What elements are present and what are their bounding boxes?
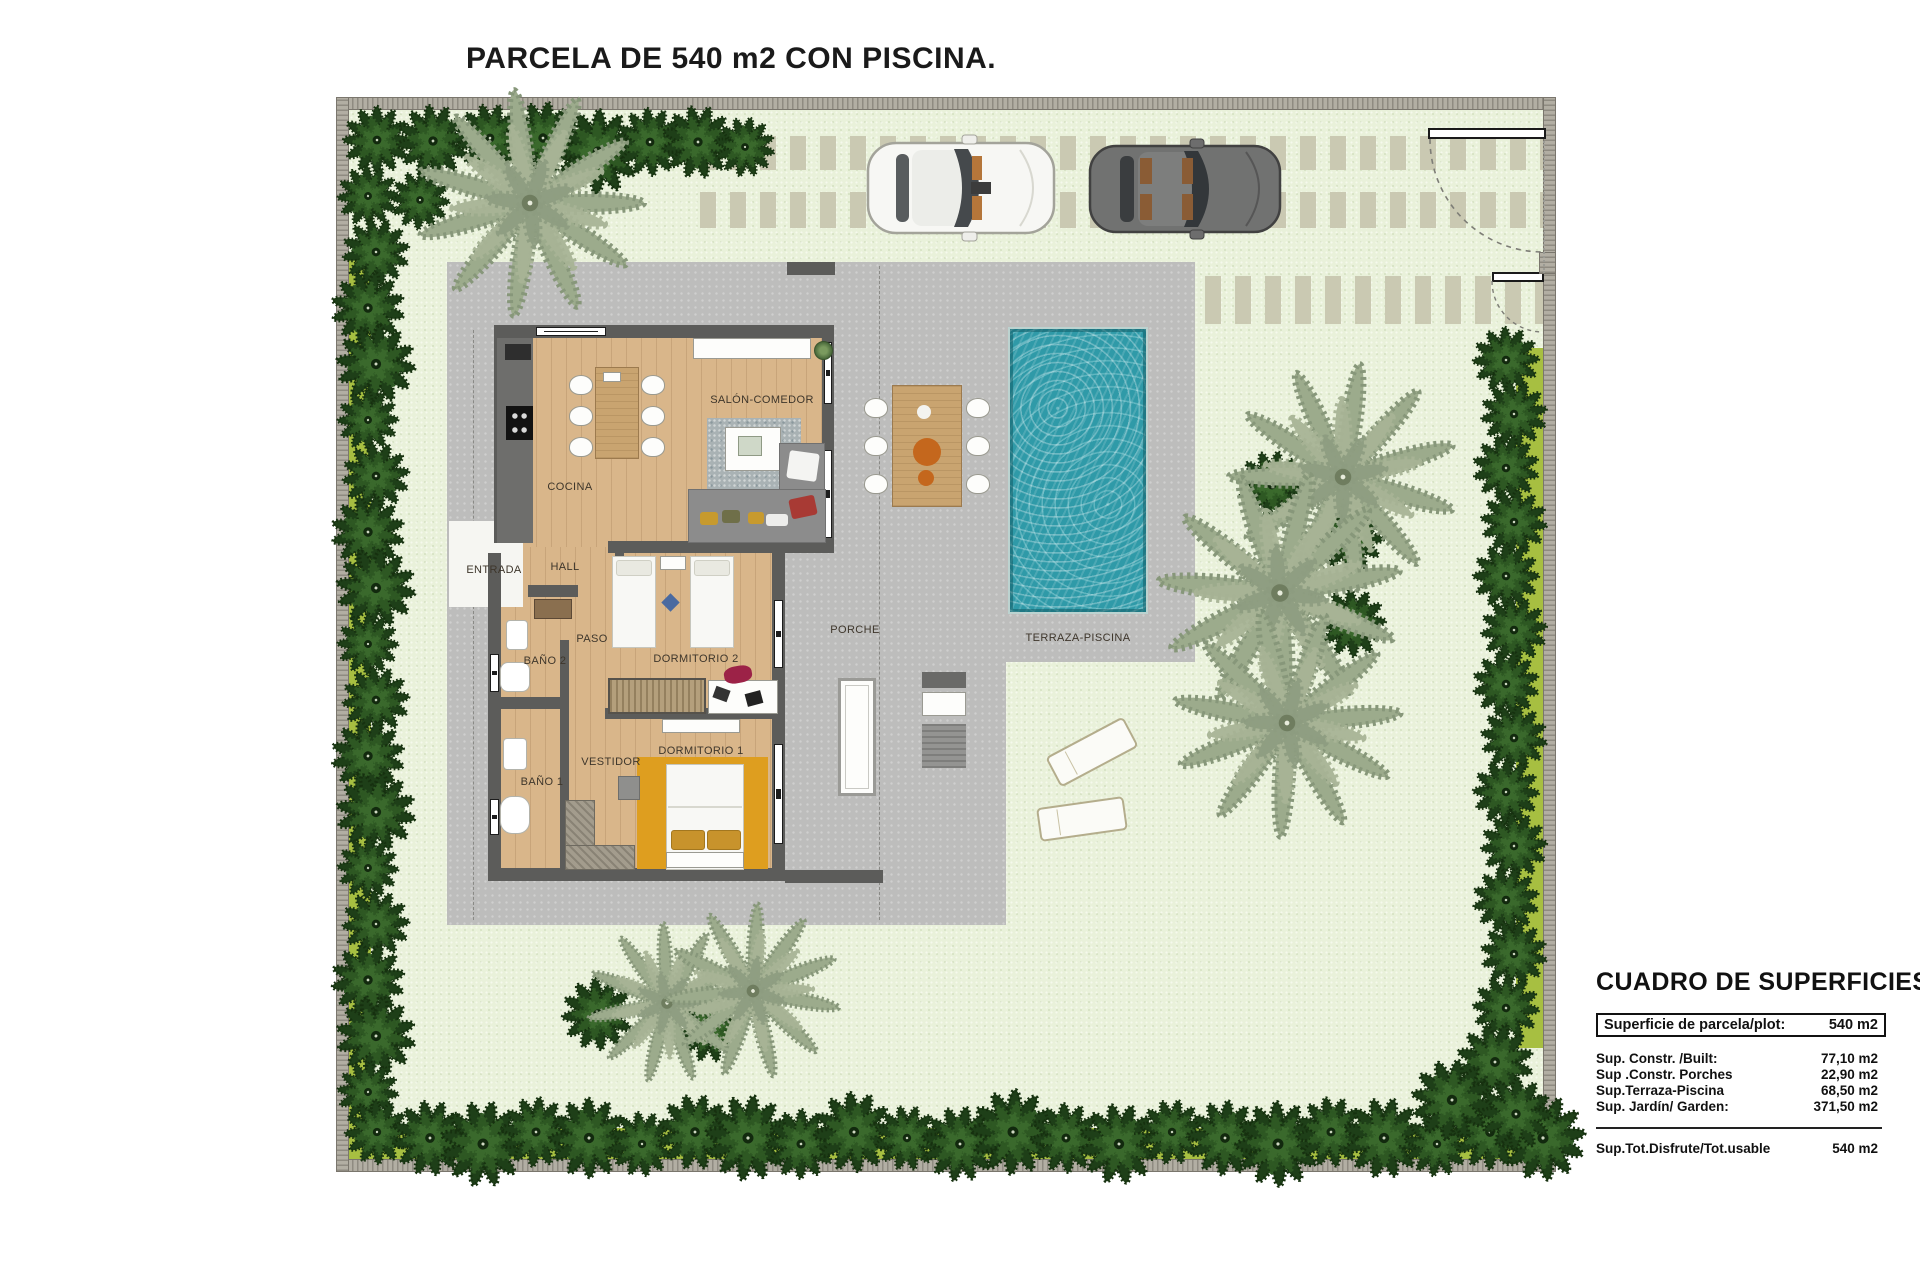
dining-chair [641, 406, 665, 426]
dining-chair [641, 437, 665, 457]
surface-row-value: 68,50 m2 [1821, 1083, 1878, 1099]
porch-dashed-line [879, 266, 880, 920]
lawn-strip-left [349, 258, 371, 1158]
headboard [666, 852, 744, 868]
bath1-sink [503, 738, 527, 770]
kitchen-sink [505, 344, 531, 360]
lawn-strip-bottom [349, 1128, 1543, 1159]
total-row-value: 540 m2 [1832, 1141, 1878, 1156]
surface-row-label: Sup.Terraza-Piscina [1596, 1083, 1724, 1099]
window-dorm2 [774, 600, 783, 668]
sofa-pillow-white [786, 450, 820, 482]
vehicle-gate-leaf [1428, 128, 1546, 139]
sofa-cushion [748, 512, 764, 524]
plot-wall-bottom [336, 1159, 1556, 1172]
room-label-entrada: ENTRADA [466, 564, 521, 576]
wall-bathroom-divider [500, 697, 564, 709]
kitchen-counter [497, 338, 533, 543]
surface-row: Sup. Jardín/ Garden: 371,50 m2 [1596, 1099, 1878, 1115]
nightstand [660, 556, 686, 570]
parking-stripes-row2 [700, 192, 1543, 228]
outdoor-chair [966, 474, 990, 494]
outdoor-chair [864, 474, 888, 494]
wall-hall [528, 585, 578, 597]
bed-pillow [694, 560, 730, 576]
vestidor-unit [618, 776, 640, 800]
window-dorm1 [774, 744, 783, 844]
bath1-tub [500, 796, 530, 834]
surface-row-value: 77,10 m2 [1821, 1051, 1878, 1067]
surfaces-table-title: CUADRO DE SUPERFICIES [1596, 968, 1896, 997]
room-label-paso: PASO [576, 633, 607, 645]
parking-stripes-row3 [1205, 276, 1543, 324]
room-label-dormitorio-1: DORMITORIO 1 [658, 745, 743, 757]
room-label-bano-1: BAÑO 1 [521, 776, 564, 788]
sofa-throw [766, 514, 788, 526]
room-label-terraza-piscina: TERRAZA-PISCINA [1025, 632, 1130, 644]
lawn-strip-right [1516, 348, 1543, 1048]
outdoor-chair [966, 436, 990, 456]
duvet-fold [668, 806, 742, 808]
gate-pier [1539, 252, 1556, 274]
plate-large [913, 438, 941, 466]
dining-chair [641, 375, 665, 395]
room-label-dormitorio-2: DORMITORIO 2 [653, 653, 738, 665]
surface-row-label: Sup. Constr. /Built: [1596, 1051, 1718, 1067]
page-title: PARCELA DE 540 m2 CON PISCINA. [466, 42, 996, 76]
total-row-label: Sup.Tot.Disfrute/Tot.usable [1596, 1141, 1770, 1156]
floor-plan-page: PARCELA DE 540 m2 CON PISCINA. [0, 0, 1920, 1280]
dining-tray [603, 372, 621, 382]
porch-bench [922, 672, 966, 688]
vestidor-closet [565, 845, 635, 870]
plot-wall-top [336, 97, 1556, 110]
surface-row-label: Sup .Constr. Porches [1596, 1067, 1733, 1083]
table-divider [1596, 1127, 1882, 1129]
surface-row-label: Sup. Jardín/ Garden: [1596, 1099, 1729, 1115]
surface-row: Sup.Terraza-Piscina 68,50 m2 [1596, 1083, 1878, 1099]
kitchen-stove [506, 406, 533, 440]
parking-stripes-row1 [700, 136, 1543, 170]
window-bath2 [490, 654, 499, 692]
room-label-vestidor: VESTIDOR [581, 756, 640, 768]
dining-chair [569, 375, 593, 395]
gate-boundary-line [1543, 141, 1545, 273]
plate-small [918, 470, 934, 486]
room-label-hall: HALL [550, 561, 579, 573]
surfaces-table: CUADRO DE SUPERFICIES Superficie de parc… [1596, 968, 1896, 1156]
sofa-cushion [700, 512, 718, 525]
wall-stub-top [787, 262, 835, 275]
plot-area-row: Superficie de parcela/plot: 540 m2 [1596, 1013, 1886, 1037]
surface-row: Sup .Constr. Porches 22,90 m2 [1596, 1067, 1878, 1083]
swimming-pool [1008, 327, 1148, 614]
outdoor-chair [864, 436, 888, 456]
bed-pillow-orange [671, 830, 705, 850]
plot-area-value: 540 m2 [1829, 1017, 1878, 1033]
dining-chair [569, 437, 593, 457]
room-label-salon-comedor: SALÓN-COMEDOR [710, 394, 814, 406]
room-label-porche: PORCHE [830, 624, 879, 636]
total-row: Sup.Tot.Disfrute/Tot.usable 540 m2 [1596, 1141, 1878, 1156]
window-bath1 [490, 799, 499, 835]
surface-row-value: 371,50 m2 [1813, 1099, 1878, 1115]
surface-row-value: 22,90 m2 [1821, 1067, 1878, 1083]
bed-pillow-orange [707, 830, 741, 850]
surface-row: Sup. Constr. /Built: 77,10 m2 [1596, 1051, 1878, 1067]
porch-low-wall [785, 870, 883, 883]
room-label-cocina: COCINA [547, 481, 592, 493]
plot-area-label: Superficie de parcela/plot: [1604, 1017, 1785, 1033]
bed-pillow [616, 560, 652, 576]
porch-table [922, 692, 966, 716]
sofa-cushion [722, 510, 740, 523]
dining-chair [569, 406, 593, 426]
room-label-bano-2: BAÑO 2 [524, 655, 567, 667]
outdoor-chair [864, 398, 888, 418]
wardrobe [608, 678, 706, 714]
setback-dashed-line [473, 330, 474, 920]
bath2-sink [506, 620, 528, 650]
sideboard [693, 338, 811, 359]
porch-planter [838, 678, 876, 796]
plate-white [917, 405, 931, 419]
window-kitchen [536, 327, 606, 336]
outdoor-chair [966, 398, 990, 418]
plot-wall-left [336, 97, 349, 1172]
entry-closet [534, 599, 572, 619]
plant-icon [814, 341, 833, 360]
console [662, 719, 740, 733]
porch-mat [922, 724, 966, 768]
tv-art [738, 436, 762, 456]
pedestrian-gate-leaf [1492, 272, 1544, 282]
